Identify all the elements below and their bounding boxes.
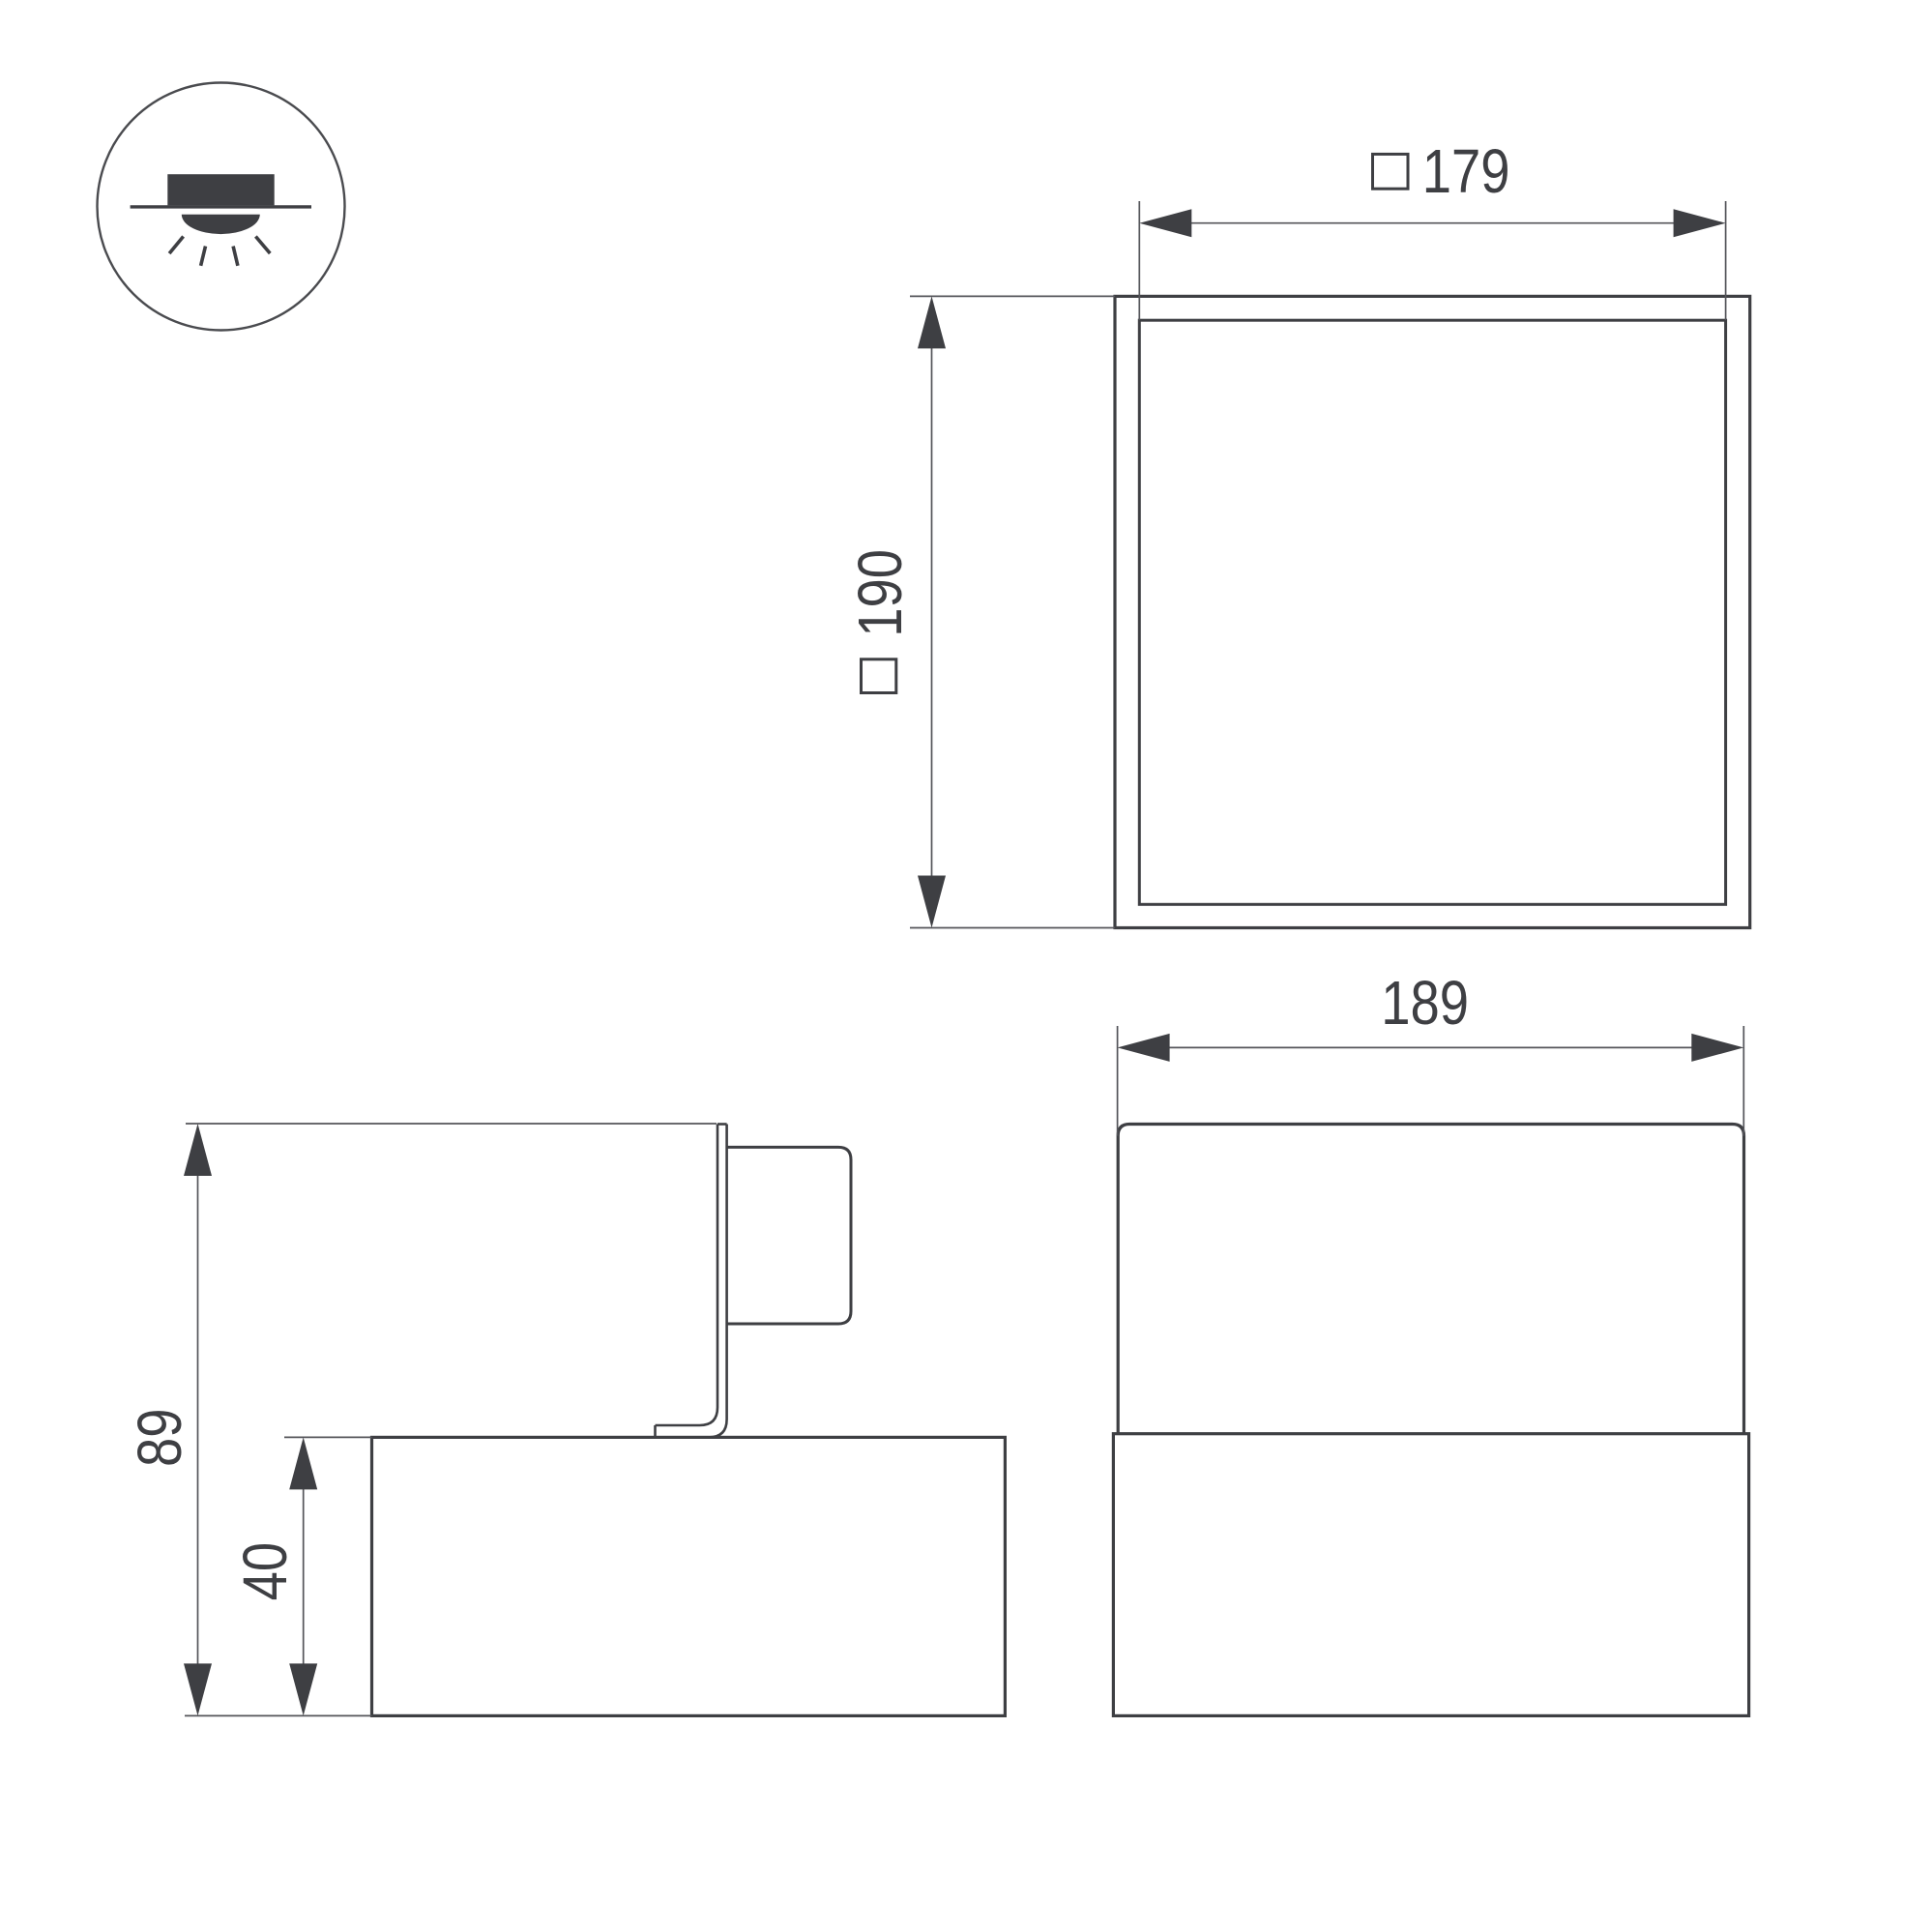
svg-text:190: 190 (845, 549, 915, 637)
svg-text:189: 189 (1381, 968, 1469, 1038)
svg-text:89: 89 (125, 1409, 194, 1467)
svg-text:40: 40 (230, 1542, 300, 1600)
svg-text:179: 179 (1422, 136, 1510, 206)
